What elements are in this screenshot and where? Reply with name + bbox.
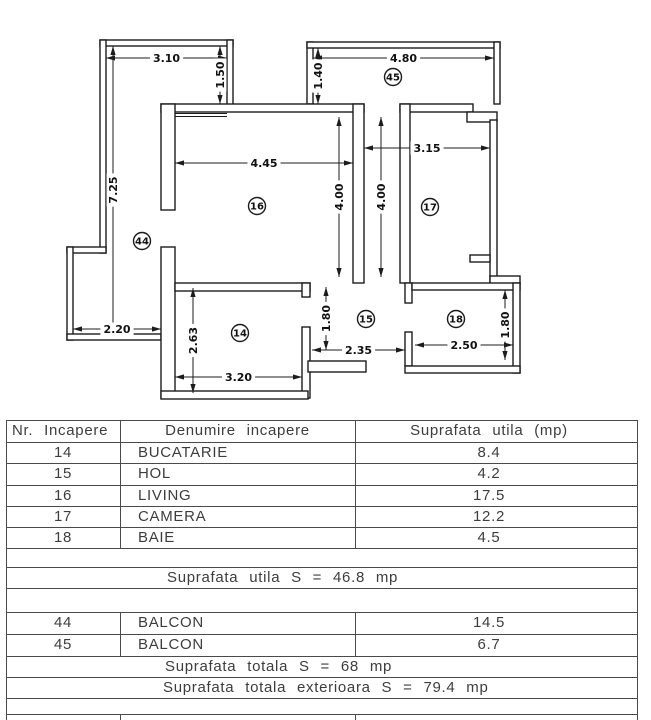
row-room-name: BAIE bbox=[138, 527, 175, 548]
table-column-divider bbox=[120, 420, 121, 548]
row-room-name: BALCON bbox=[138, 612, 204, 634]
row-room-name: HOL bbox=[138, 463, 171, 485]
row-area-value: 4.2 bbox=[355, 463, 623, 485]
summary-suprafata-utila: Suprafata utila S = 46.8 mp bbox=[167, 567, 398, 588]
row-area-value: 14.5 bbox=[355, 612, 623, 634]
row-area-value: 4.5 bbox=[355, 527, 623, 548]
row-room-name: BALCON bbox=[138, 634, 204, 656]
table-horizontal-line bbox=[6, 656, 637, 657]
screen: 3.101.507.252.204.801.404.454.004.003.15… bbox=[0, 0, 651, 720]
table-column-divider bbox=[355, 714, 356, 720]
table-horizontal-line bbox=[6, 714, 637, 715]
row-number: 15 bbox=[6, 463, 120, 485]
row-number: 17 bbox=[6, 506, 120, 527]
table-header-nr: Nr. Incapere bbox=[12, 420, 108, 442]
table-horizontal-line bbox=[6, 548, 637, 549]
table-header-name: Denumire incapere bbox=[120, 420, 355, 442]
table-horizontal-line bbox=[6, 567, 637, 568]
row-number: 44 bbox=[6, 612, 120, 634]
table-header-area: Suprafata utila (mp) bbox=[355, 420, 623, 442]
table-horizontal-line bbox=[6, 588, 637, 589]
row-number: 14 bbox=[6, 442, 120, 463]
row-area-value: 6.7 bbox=[355, 634, 623, 656]
table-column-divider bbox=[120, 612, 121, 656]
row-number: 18 bbox=[6, 527, 120, 548]
row-number: 45 bbox=[6, 634, 120, 656]
row-area-value: 17.5 bbox=[355, 485, 623, 506]
table-horizontal-line bbox=[6, 698, 637, 699]
row-room-name: BUCATARIE bbox=[138, 442, 228, 463]
row-room-name: CAMERA bbox=[138, 506, 206, 527]
row-number: 16 bbox=[6, 485, 120, 506]
row-area-value: 12.2 bbox=[355, 506, 623, 527]
row-area-value: 8.4 bbox=[355, 442, 623, 463]
summary-suprafata-totala-exterioara: Suprafata totala exterioara S = 79.4 mp bbox=[163, 677, 489, 698]
area-table: Nr. Incapere Denumire incapere Suprafata… bbox=[0, 0, 651, 720]
table-horizontal-line bbox=[6, 420, 637, 421]
row-room-name: LIVING bbox=[138, 485, 191, 506]
table-horizontal-line bbox=[6, 677, 637, 678]
table-column-divider bbox=[120, 714, 121, 720]
table-right-border bbox=[637, 420, 638, 720]
summary-suprafata-totala: Suprafata totala S = 68 mp bbox=[165, 656, 392, 677]
